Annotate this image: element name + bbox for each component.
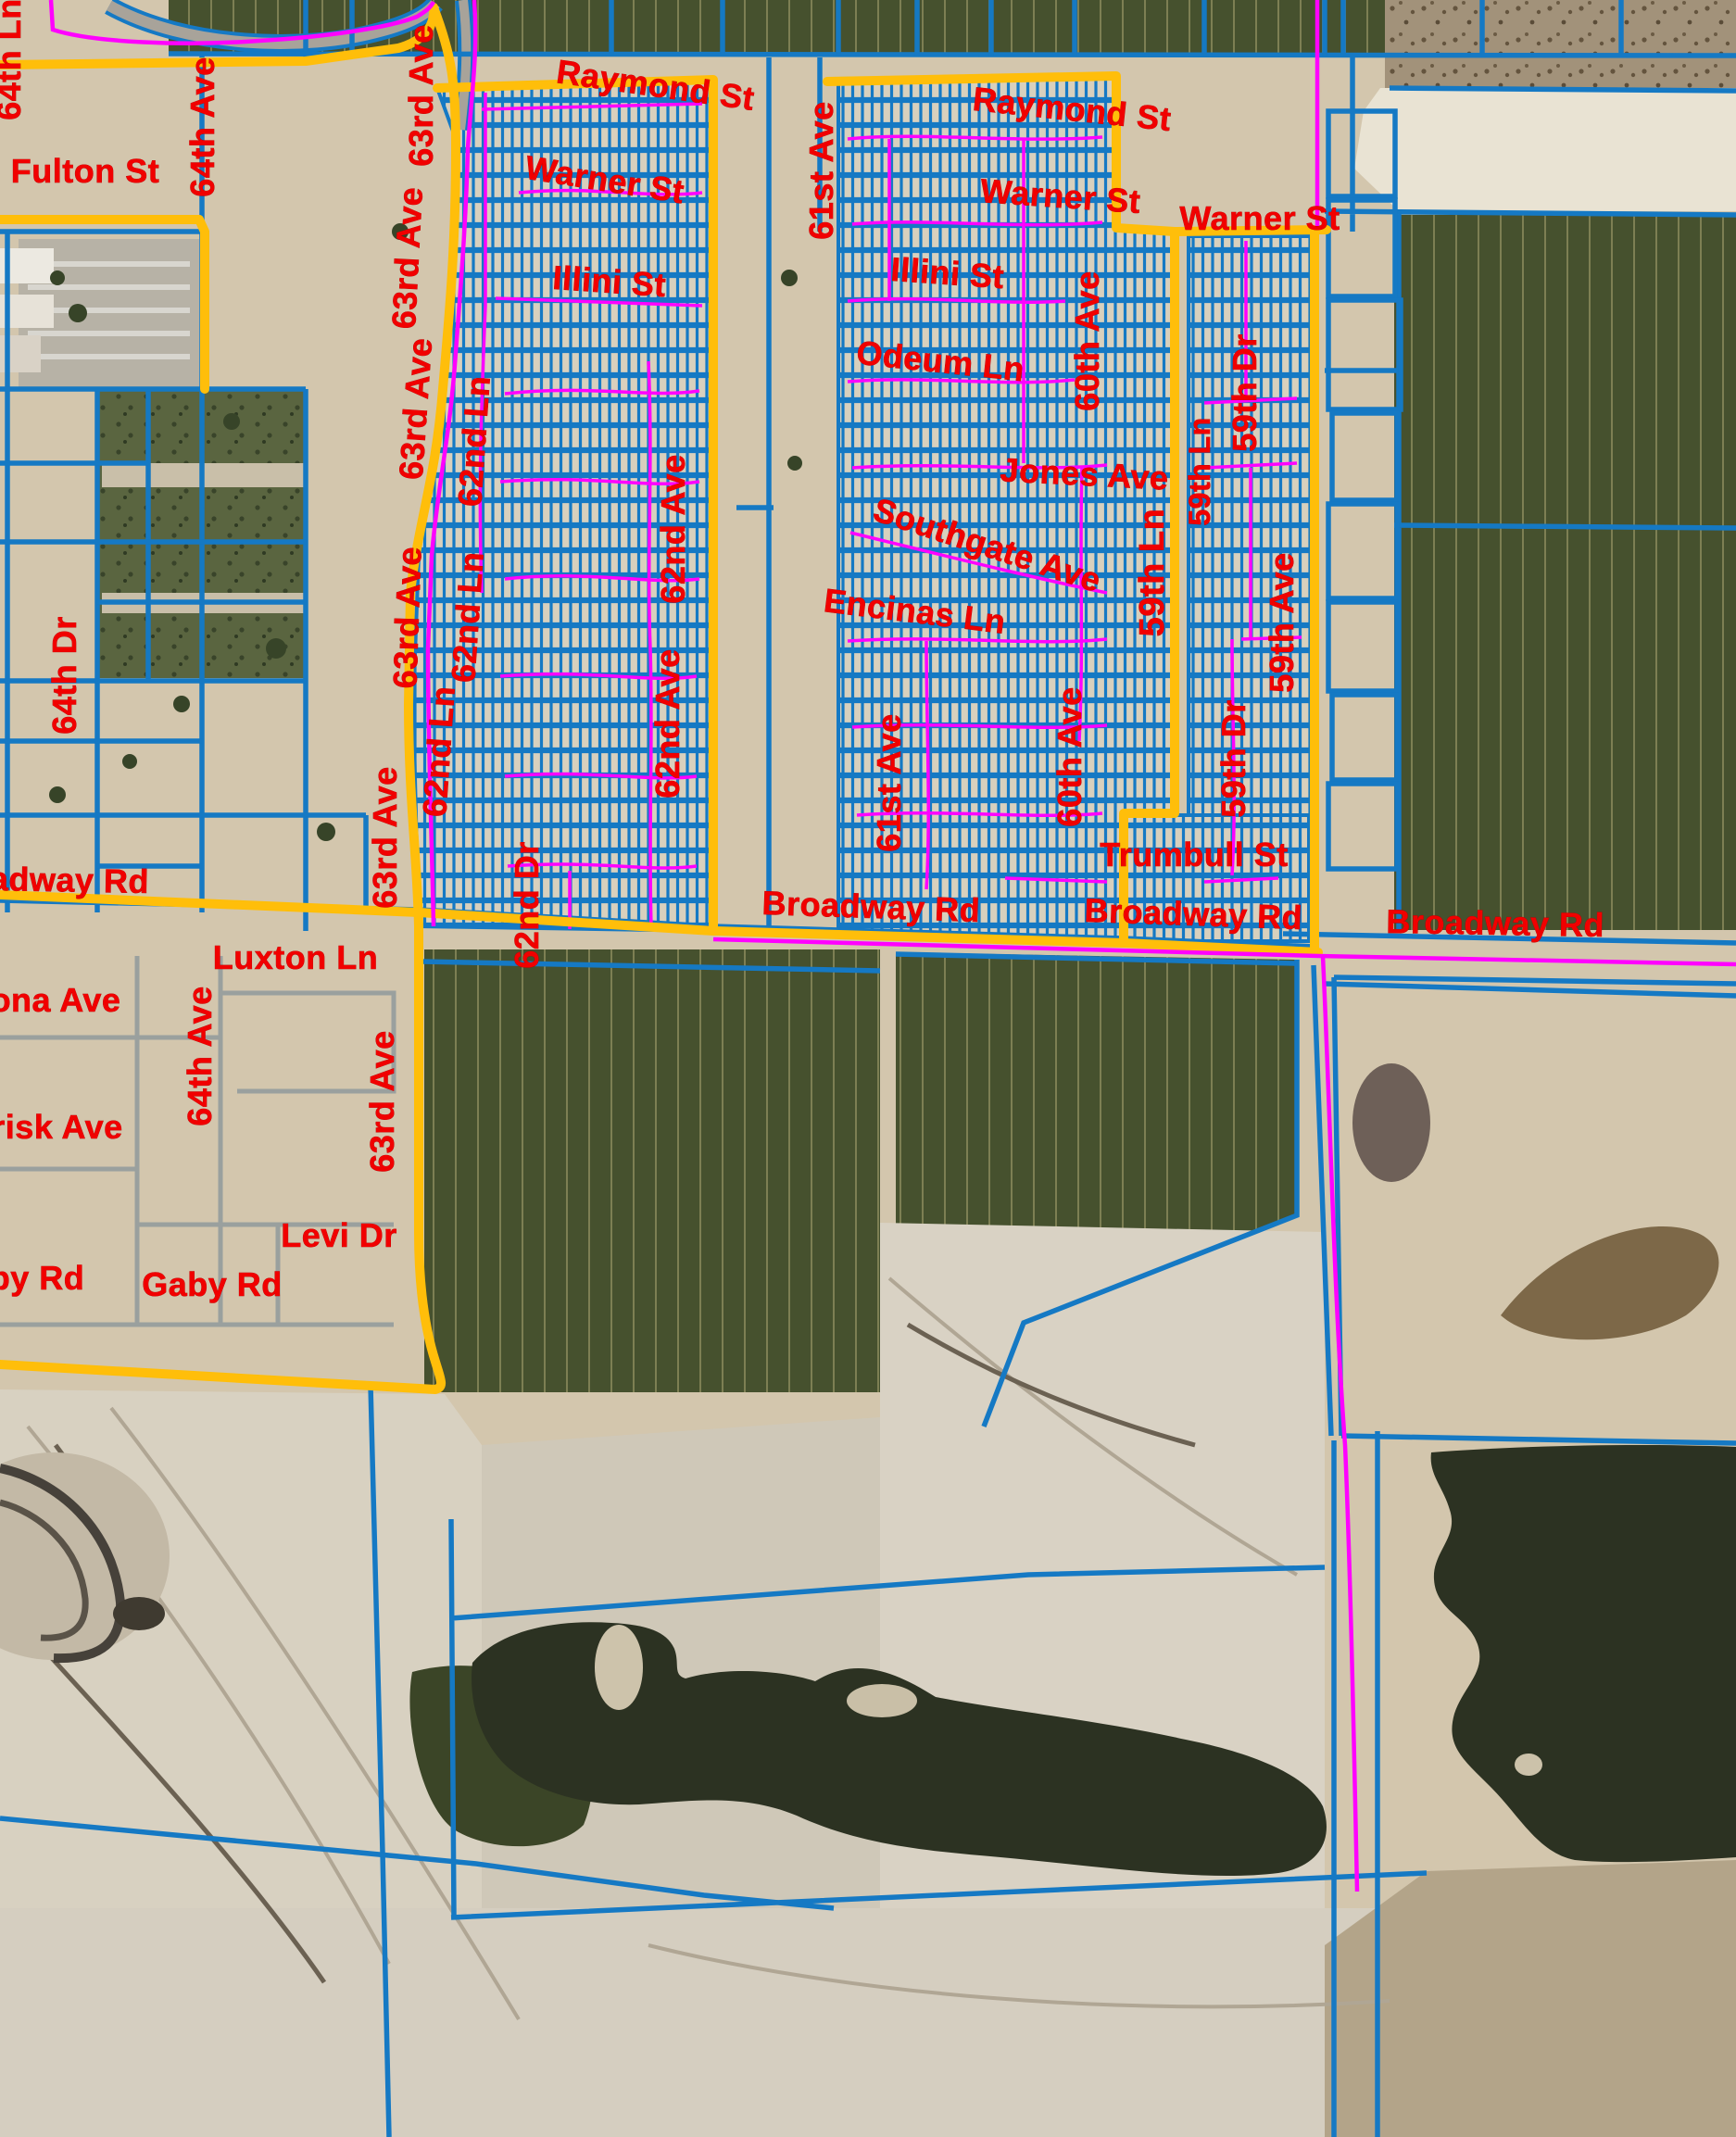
map-canvas[interactable]: 64th LnFulton St64th Ave63rd Ave63rd Ave… [0, 0, 1736, 2137]
street-label: 61st Ave [870, 713, 908, 851]
map-shape [50, 270, 65, 285]
map-shape [49, 786, 66, 803]
street-label: Gaby Rd [142, 1265, 283, 1303]
street-label: 60th Ave [1050, 686, 1088, 826]
street-label: Broadway Rd [0, 859, 149, 900]
street-label: 62nd Dr [508, 841, 546, 969]
southeast-scrub [1325, 1860, 1736, 2137]
northeast-dirt-pad [1354, 88, 1736, 211]
street-label: 60th Ave [1068, 270, 1106, 410]
street-label: Broadway Rd [761, 884, 981, 929]
lake-island [1515, 1754, 1542, 1776]
street-label: 64th Ln [0, 0, 28, 120]
lake-island [595, 1625, 643, 1710]
map-shape [223, 413, 240, 430]
street-label: Luxton Ln [213, 938, 378, 976]
east-crop-field [1394, 215, 1736, 930]
school-campus [0, 239, 199, 387]
street-label: 62nd Ave [648, 648, 686, 798]
street-label: 63rd Ave [366, 766, 404, 908]
street-label: 59th Ln [1183, 417, 1216, 525]
street-label: 64th Ave [183, 57, 221, 196]
street-label: 64th Ave [181, 986, 219, 1125]
street-label: 64th Dr [45, 616, 83, 735]
street-label: risk Ave [0, 1108, 123, 1146]
street-label: 63rd Ave [385, 546, 428, 689]
street-label: 59th Dr [1214, 699, 1252, 818]
street-label: 62nd Ave [654, 454, 692, 603]
map-shape [69, 304, 87, 322]
street-label: by Rd [0, 1259, 84, 1297]
map-svg: 64th LnFulton St64th Ave63rd Ave63rd Ave… [0, 0, 1736, 2137]
street-label: Levi Dr [281, 1216, 397, 1254]
street-label: Broadway Rd [1084, 891, 1303, 937]
street-label: Trumbull St [1100, 836, 1289, 874]
street-label: 63rd Ave [384, 186, 430, 330]
excavation-pit [1352, 1063, 1430, 1182]
street-label: 61st Ave [802, 101, 840, 239]
map-shape [122, 754, 137, 769]
street-label: Fulton St [11, 152, 159, 190]
map-shape [787, 456, 802, 471]
street-label: 59th Ave [1263, 552, 1301, 692]
street-label: Illini St [889, 250, 1005, 295]
lake-spit [847, 1684, 917, 1717]
street-label: Illini St [551, 258, 667, 304]
map-shape [173, 696, 190, 712]
street-label: Warner St [1179, 199, 1340, 237]
street-label: 59th Ln [1133, 509, 1172, 637]
south-crop-field-west [424, 949, 880, 1392]
map-shape [781, 270, 798, 286]
map-shape [317, 823, 335, 841]
street-label: Broadway Rd [1386, 902, 1604, 944]
map-shape [113, 1597, 165, 1630]
street-label: ona Ave [0, 981, 120, 1019]
street-label: 59th Dr [1226, 333, 1264, 452]
street-label: 63rd Ave [402, 24, 440, 166]
map-shape [266, 638, 286, 659]
street-label: 63rd Ave [363, 1030, 401, 1172]
northeast-fallow-field [1385, 0, 1736, 88]
